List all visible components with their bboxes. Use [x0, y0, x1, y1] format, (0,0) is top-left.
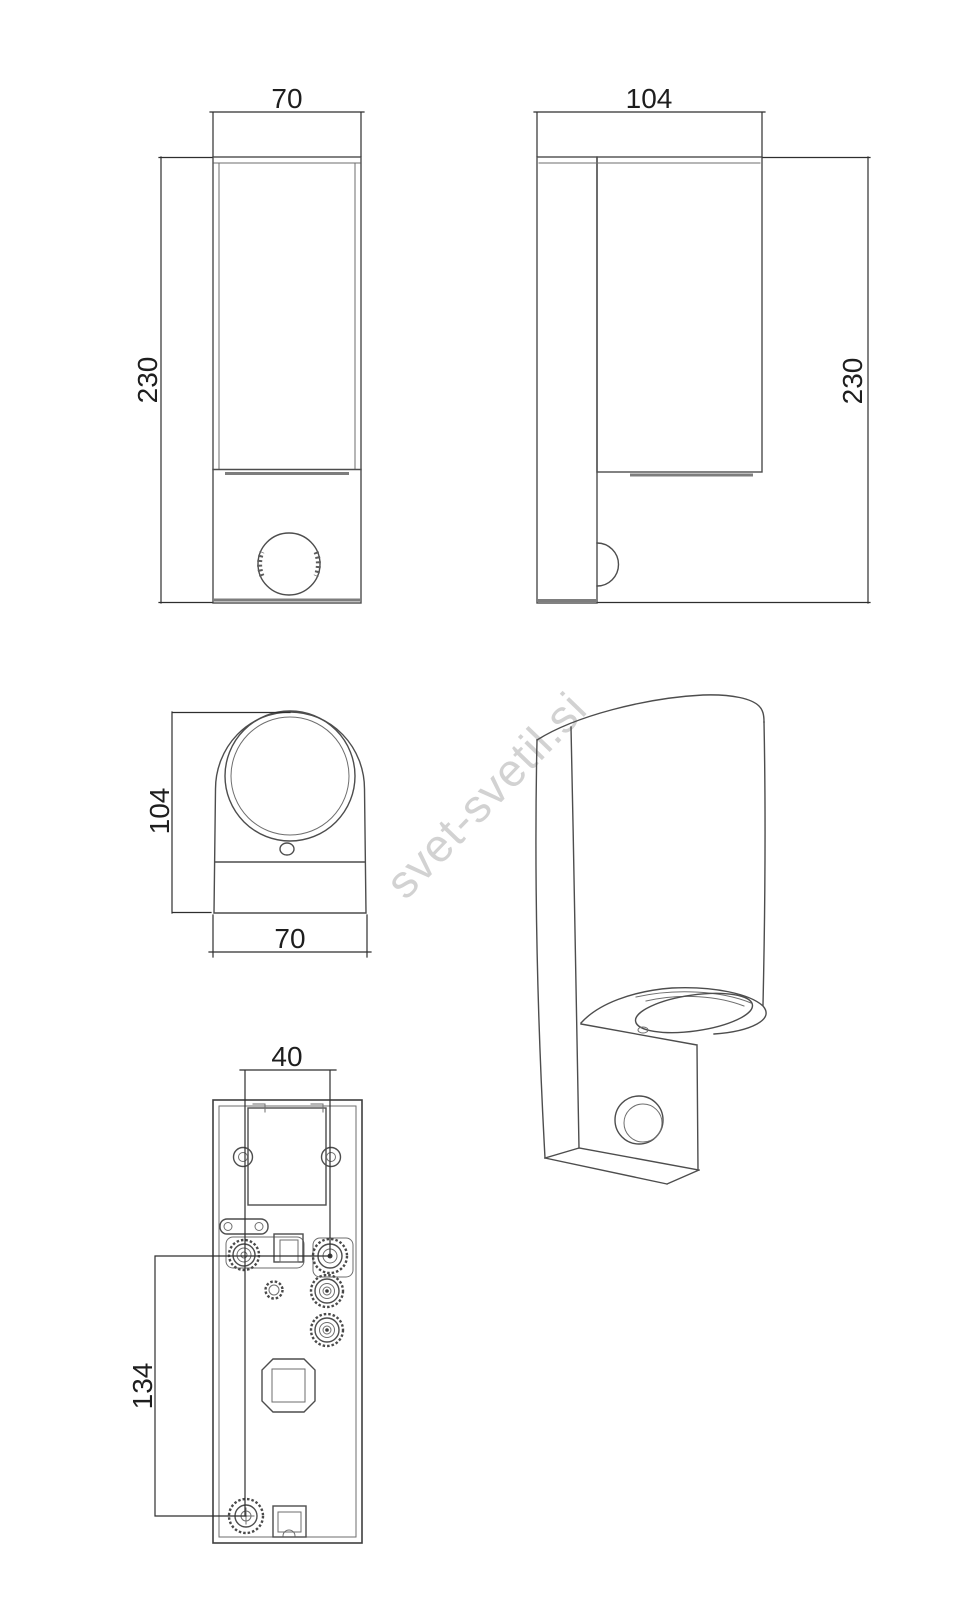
dim-label-top-width: 70	[274, 923, 305, 954]
persp-right-edge	[763, 722, 765, 1005]
side-body	[597, 157, 762, 472]
dim-back-hole-spacing: 40	[240, 1041, 336, 1516]
dim-front-height: 230	[132, 157, 212, 603]
back-cable-gland-left	[229, 1240, 259, 1270]
persp-sensor-inner	[624, 1104, 662, 1142]
dim-side-depth: 104	[534, 83, 765, 156]
front-thick-edges	[213, 474, 361, 601]
top-view: 104 70	[144, 711, 371, 957]
top-sensor-hole	[280, 843, 294, 855]
dim-top-width: 70	[209, 915, 371, 957]
dim-label-side-depth: 104	[626, 83, 673, 114]
front-sensor-knurl	[260, 552, 319, 576]
back-mounting-ears	[234, 1148, 341, 1167]
side-view: 104 230	[534, 83, 870, 603]
persp-bottom-edges	[545, 1148, 699, 1184]
dim-back-hole-offset: 134	[127, 1256, 330, 1516]
persp-box-edges	[581, 1024, 698, 1170]
front-view: 70 230	[132, 83, 364, 603]
front-sensor-circle	[258, 533, 320, 595]
front-inner-frame	[214, 163, 360, 469]
dim-label-back-hole-spacing: 40	[271, 1041, 302, 1072]
back-junction-cutout	[248, 1108, 326, 1205]
dim-label-back-hole-offset: 134	[127, 1363, 158, 1410]
back-view: 40 134	[127, 1041, 362, 1543]
drawing-svg: 70 230 104 230	[0, 0, 972, 1600]
back-slotted-plate	[220, 1219, 268, 1234]
dim-label-side-height: 230	[837, 358, 868, 405]
dim-side-height: 230	[598, 157, 870, 603]
back-knurled-screw-small	[266, 1282, 283, 1299]
persp-left-edge	[536, 740, 545, 1158]
side-sensor-bump	[597, 543, 619, 586]
back-cable-gland-right-3	[311, 1314, 343, 1346]
dim-front-width: 70	[210, 83, 364, 156]
persp-plate-edge	[571, 727, 579, 1148]
side-lens-edge	[537, 475, 753, 601]
dim-top-depth: 104	[144, 712, 290, 913]
dim-label-front-width: 70	[271, 83, 302, 114]
back-cable-clamp	[274, 1234, 303, 1262]
persp-rim-rings	[636, 992, 751, 1006]
back-strain-relief-bottom	[273, 1506, 306, 1537]
top-lens-inner	[231, 717, 349, 835]
front-outline	[213, 157, 361, 603]
dim-label-top-depth: 104	[144, 788, 175, 835]
dim-label-front-height: 230	[132, 357, 163, 404]
persp-rim-outer	[581, 988, 766, 1034]
side-wall-plate	[537, 157, 597, 603]
top-lens-outer	[225, 711, 355, 841]
back-terminal-box	[262, 1359, 315, 1412]
technical-drawing-canvas: svet-svetil.si 70 230	[0, 0, 972, 1600]
perspective-view	[536, 695, 766, 1184]
back-cable-gland-right-2	[311, 1275, 343, 1307]
